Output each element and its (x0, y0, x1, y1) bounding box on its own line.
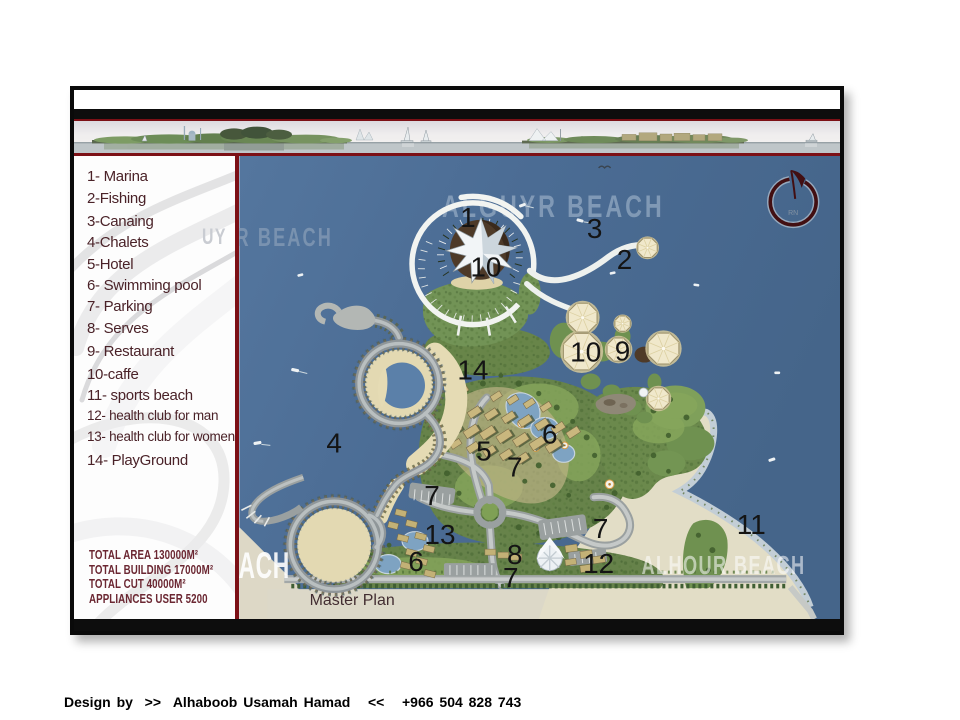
svg-text:4: 4 (326, 427, 342, 458)
svg-text:10: 10 (570, 337, 601, 368)
svg-text:12: 12 (583, 548, 614, 579)
svg-text:ALHOUR BEACH: ALHOUR BEACH (641, 551, 805, 580)
svg-text:5: 5 (476, 435, 492, 466)
svg-text:7: 7 (507, 451, 523, 482)
svg-text:2: 2 (616, 244, 632, 275)
svg-text:7: 7 (503, 562, 519, 593)
svg-text:10: 10 (470, 252, 501, 283)
svg-text:6: 6 (408, 546, 424, 577)
svg-text:6: 6 (541, 418, 557, 449)
svg-text:RN: RN (788, 210, 798, 217)
svg-text:9: 9 (614, 336, 630, 367)
svg-text:ALGUYR BEACH: ALGUYR BEACH (239, 223, 333, 252)
svg-text:13: 13 (424, 519, 455, 550)
svg-text:11: 11 (736, 509, 765, 540)
svg-text:3: 3 (586, 213, 602, 244)
svg-text:1: 1 (460, 202, 476, 233)
svg-text:Master Plan: Master Plan (309, 592, 394, 609)
svg-text:7: 7 (424, 480, 440, 511)
svg-text:14: 14 (457, 355, 488, 386)
svg-text:BEACH: BEACH (239, 544, 290, 586)
svg-text:7: 7 (592, 513, 608, 544)
